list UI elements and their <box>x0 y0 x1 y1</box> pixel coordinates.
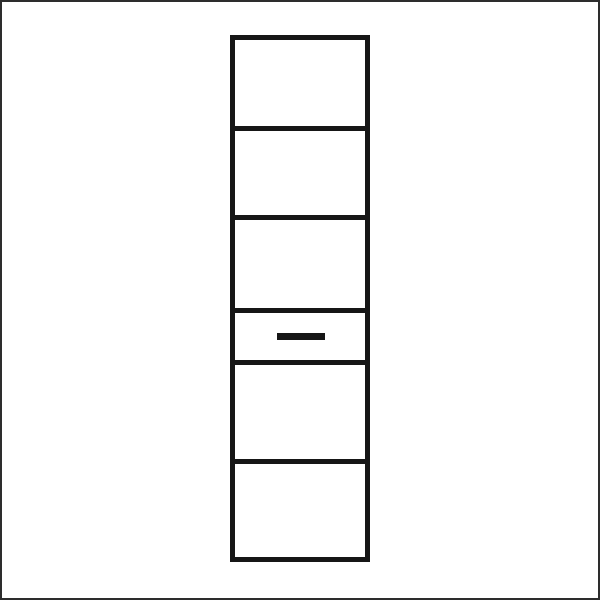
drawer-handle <box>277 333 325 340</box>
shelf-divider-5 <box>235 459 365 464</box>
shelf-divider-3 <box>235 308 365 313</box>
shelf-divider-1 <box>235 126 365 131</box>
cabinet-outline <box>230 35 370 562</box>
shelf-divider-2 <box>235 215 365 220</box>
drawing-canvas <box>0 0 600 600</box>
shelf-divider-4 <box>235 360 365 365</box>
